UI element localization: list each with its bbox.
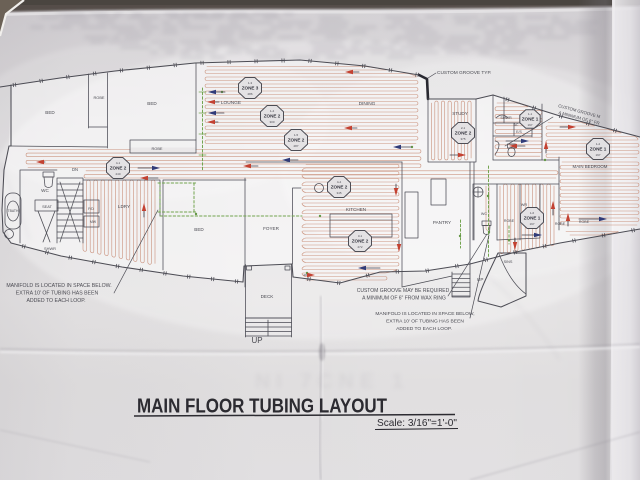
svg-text:KITCHEN: KITCHEN	[346, 207, 366, 212]
svg-text:287: 287	[293, 144, 298, 148]
svg-text:FOYER: FOYER	[263, 226, 280, 231]
svg-text:EXTRA 10' OF TUBING HAS BEEN: EXTRA 10' OF TUBING HAS BEEN	[16, 291, 99, 297]
svg-text:SHWR: SHWR	[44, 246, 56, 251]
svg-text:UP: UP	[477, 277, 483, 282]
svg-text:1-6: 1-6	[530, 211, 535, 215]
svg-text:1-5: 1-5	[294, 133, 299, 137]
svg-text:DINING: DINING	[359, 101, 376, 107]
svg-text:1-4: 1-4	[270, 109, 275, 113]
svg-text:4-1: 4-1	[116, 161, 121, 165]
svg-text:ZONE 1: ZONE 1	[590, 147, 607, 152]
svg-text:ROBE: ROBE	[504, 219, 515, 223]
svg-text:WR: WR	[521, 202, 528, 207]
svg-text:BED: BED	[194, 227, 204, 232]
svg-text:TBATH: TBATH	[8, 209, 19, 213]
svg-text:286: 286	[247, 92, 252, 96]
svg-text:DN: DN	[72, 167, 78, 172]
svg-text:ZONE 2: ZONE 2	[264, 114, 281, 119]
svg-text:AC: AC	[514, 123, 519, 127]
svg-text:MW: MW	[90, 220, 97, 224]
svg-text:ZONE 2: ZONE 2	[110, 166, 127, 171]
svg-text:MAIN BEDROOM: MAIN BEDROOM	[573, 164, 608, 169]
svg-text:ADDED TO EACH LOOP.: ADDED TO EACH LOOP.	[396, 326, 452, 332]
svg-text:ZONE 2: ZONE 2	[352, 239, 369, 244]
svg-text:PANTRY: PANTRY	[433, 220, 451, 225]
svg-text:F/D: F/D	[88, 207, 94, 211]
svg-text:240: 240	[115, 172, 120, 176]
svg-text:ZONE 2: ZONE 2	[331, 185, 348, 190]
svg-text:1-3: 1-3	[248, 81, 253, 85]
svg-text:LOUNGE: LOUNGE	[221, 100, 241, 106]
svg-text:ZONE 2: ZONE 2	[455, 131, 472, 136]
svg-text:272: 272	[357, 245, 362, 249]
svg-text:UP: UP	[251, 336, 262, 345]
svg-text:1-1: 1-1	[528, 112, 533, 116]
svg-text:ROBE: ROBE	[151, 146, 162, 151]
svg-text:SHWR: SHWR	[500, 116, 512, 120]
svg-text:197: 197	[527, 123, 532, 127]
svg-text:197: 197	[595, 153, 600, 157]
svg-text:300: 300	[269, 120, 274, 124]
svg-text:3-1: 3-1	[358, 234, 363, 238]
svg-text:STUDY: STUDY	[452, 111, 468, 116]
svg-text:CUSTOM GROOVE TYP.: CUSTOM GROOVE TYP.	[437, 70, 491, 76]
svg-text:2-1: 2-1	[461, 126, 466, 130]
svg-text:ROBE: ROBE	[579, 220, 590, 224]
svg-text:Scale: 3/16"=1'-0": Scale: 3/16"=1'-0"	[377, 418, 457, 429]
svg-text:BED: BED	[147, 101, 157, 106]
svg-text:WC: WC	[41, 188, 49, 193]
svg-text:ZONE 2: ZONE 2	[288, 138, 305, 143]
svg-text:4-4: 4-4	[337, 180, 342, 184]
svg-text:NI 7CNE 1: NI 7CNE 1	[255, 370, 409, 393]
svg-text:ZONE 1: ZONE 1	[524, 216, 541, 221]
svg-text:197: 197	[529, 222, 534, 226]
svg-text:1-2: 1-2	[596, 142, 601, 146]
svg-text:ROBE: ROBE	[555, 222, 566, 226]
svg-text:345: 345	[336, 191, 341, 195]
svg-text:EXTRA 10' OF TUBING HAS BEEN: EXTRA 10' OF TUBING HAS BEEN	[386, 319, 464, 325]
svg-text:LDRY: LDRY	[118, 204, 130, 209]
svg-text:DECK: DECK	[261, 294, 275, 299]
svg-text:A MINIMUM OF 6" FROM WAX RING: A MINIMUM OF 6" FROM WAX RING	[362, 296, 446, 302]
svg-text:WC: WC	[481, 212, 487, 216]
svg-text:ADDED TO EACH LOOP.: ADDED TO EACH LOOP.	[26, 298, 85, 304]
svg-text:MANIFOLD IS LOCATED IN SPACE B: MANIFOLD IS LOCATED IN SPACE BELOW,	[375, 311, 474, 317]
svg-text:SINS: SINS	[504, 260, 513, 264]
svg-text:SEAT: SEAT	[42, 204, 52, 209]
svg-text:MANIFOLD IS LOCATED IN SPACE B: MANIFOLD IS LOCATED IN SPACE BELOW.	[6, 283, 111, 289]
svg-text:CUSTOM GROOVE MAY BE REQUIRED: CUSTOM GROOVE MAY BE REQUIRED	[357, 288, 450, 294]
svg-text:ROBE: ROBE	[93, 95, 104, 100]
svg-text:ZONE 1: ZONE 1	[522, 117, 539, 122]
svg-text:MAIN FLOOR TUBING LAYOUT: MAIN FLOOR TUBING LAYOUT	[137, 396, 387, 418]
svg-text:ZONE 3: ZONE 3	[242, 86, 259, 91]
svg-text:375: 375	[460, 137, 465, 141]
svg-text:BED: BED	[45, 110, 55, 115]
svg-text:E/S: E/S	[516, 130, 522, 134]
